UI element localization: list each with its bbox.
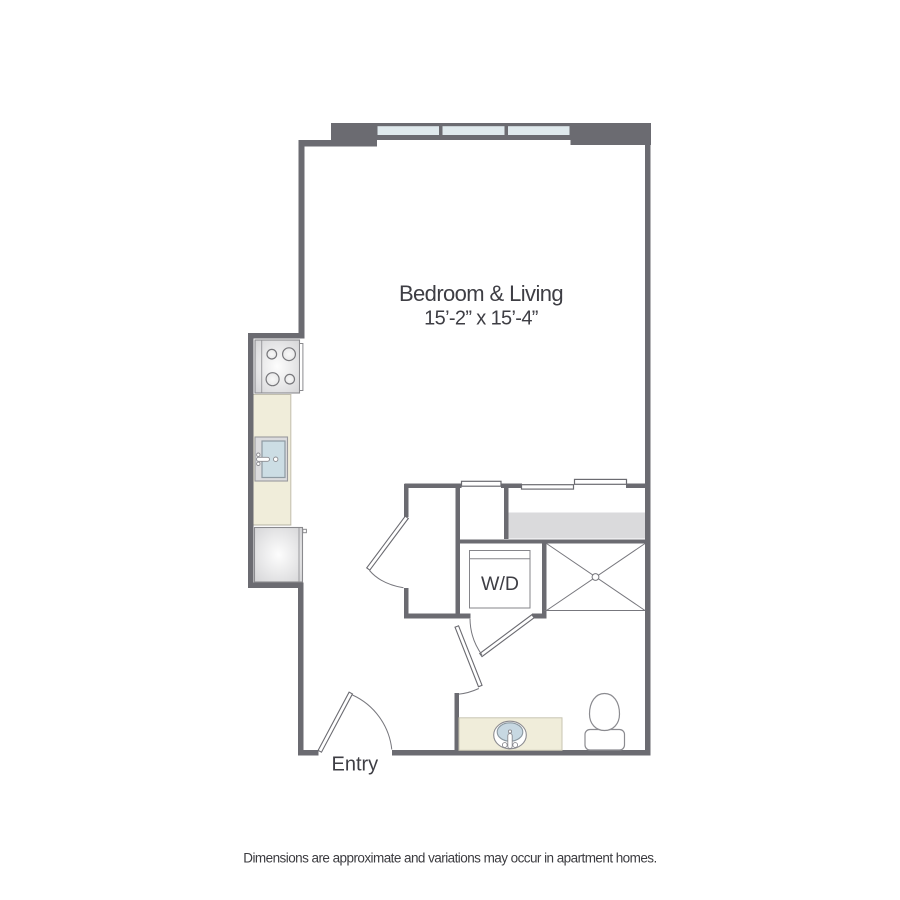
svg-text:Entry: Entry — [332, 754, 379, 776]
svg-text:15’-2” x 15’-4”: 15’-2” x 15’-4” — [424, 308, 538, 330]
svg-text:W/D: W/D — [481, 573, 519, 595]
svg-text:Bedroom & Living: Bedroom & Living — [399, 281, 563, 306]
svg-text:Dimensions are approximate and: Dimensions are approximate and variation… — [243, 851, 656, 866]
